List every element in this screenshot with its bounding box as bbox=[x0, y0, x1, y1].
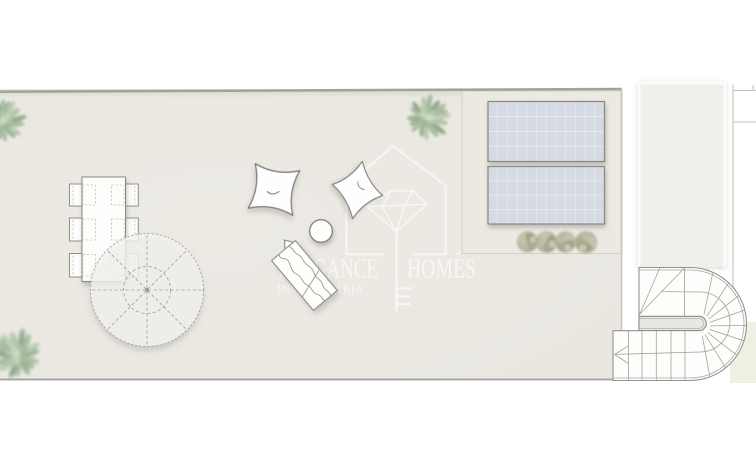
svg-text:HOMES: HOMES bbox=[407, 254, 476, 284]
